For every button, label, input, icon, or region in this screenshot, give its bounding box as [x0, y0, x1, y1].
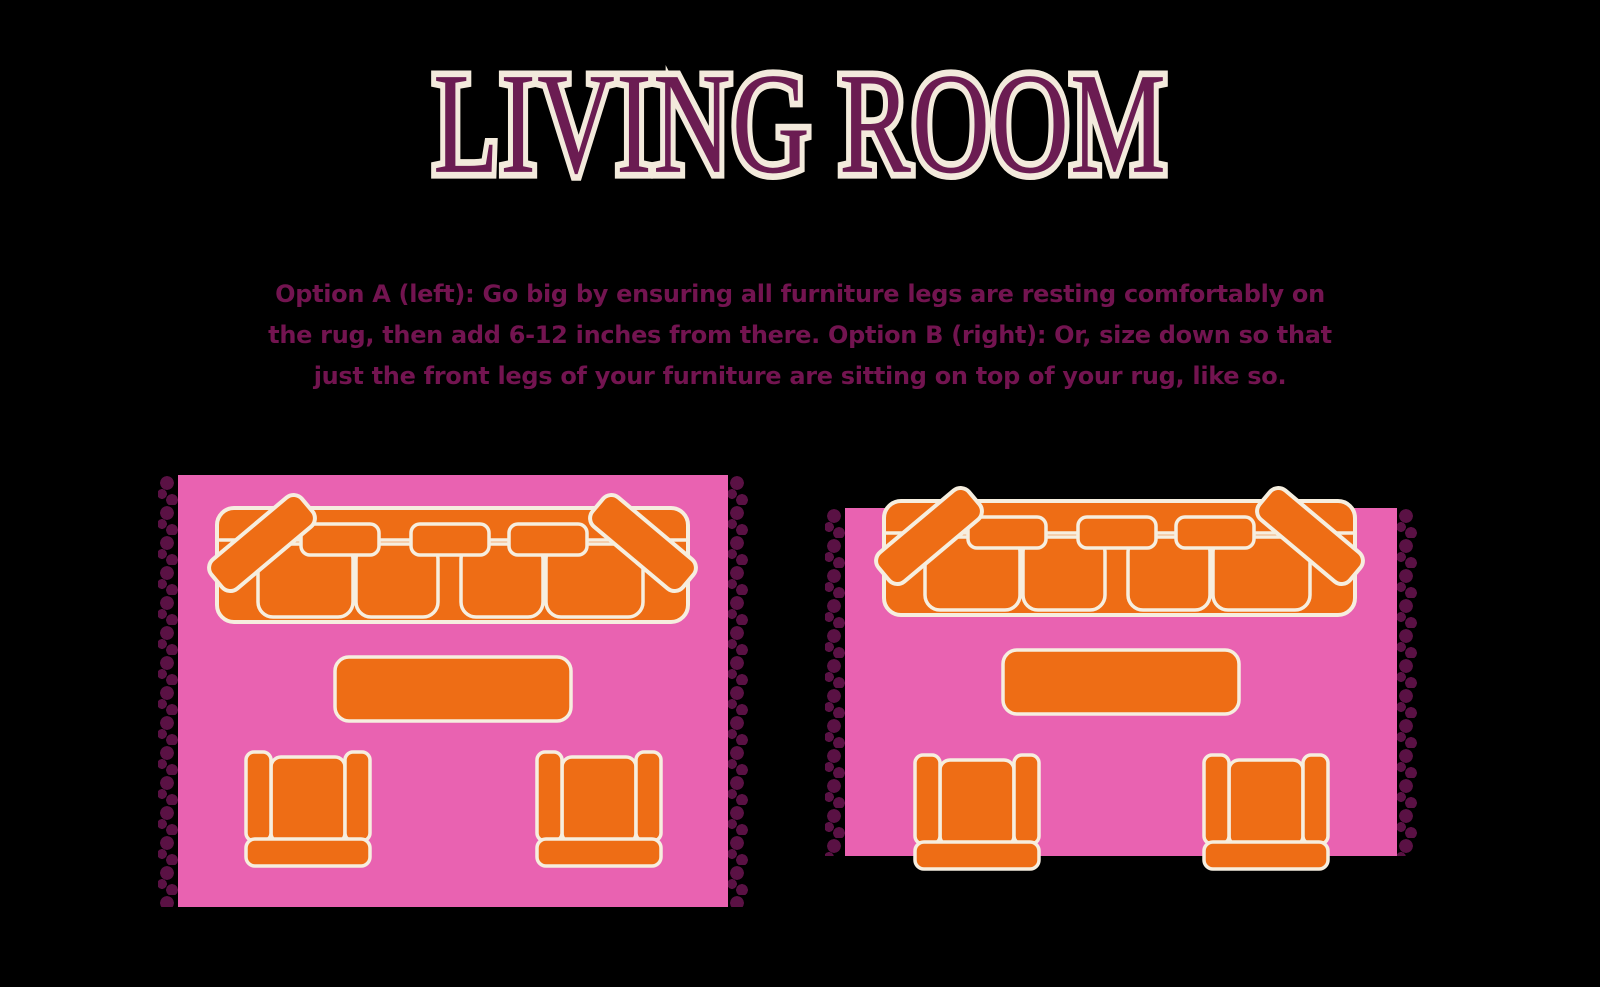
description-line-2: the rug, then add 6-12 inches from there…	[268, 321, 1332, 349]
rug-fringe-left	[158, 475, 178, 907]
description-line-3: just the front legs of your furniture ar…	[314, 362, 1287, 390]
armchair-icon	[244, 750, 372, 868]
sofa-icon	[882, 492, 1357, 620]
page-title-text: LIVING ROOM	[0, 58, 1600, 192]
diagram-option-b	[825, 508, 1417, 856]
armchair-icon	[535, 750, 663, 868]
armchair-icon	[1202, 753, 1330, 871]
sofa-icon	[215, 499, 690, 627]
rug-fringe-left	[825, 508, 845, 856]
armchair-icon	[913, 753, 1041, 871]
rug-fringe-right	[728, 475, 748, 907]
rug-fringe-right	[1397, 508, 1417, 856]
page-title: LIVING ROOM LIVING ROOM	[0, 58, 1600, 203]
coffee-table-icon	[1001, 648, 1241, 716]
rug-option-b	[845, 508, 1397, 856]
description-text: Option A (left): Go big by ensuring all …	[0, 274, 1600, 397]
diagram-option-a	[158, 475, 748, 907]
description-line-1: Option A (left): Go big by ensuring all …	[275, 280, 1325, 308]
rug-option-a	[178, 475, 728, 907]
coffee-table-icon	[333, 655, 573, 723]
